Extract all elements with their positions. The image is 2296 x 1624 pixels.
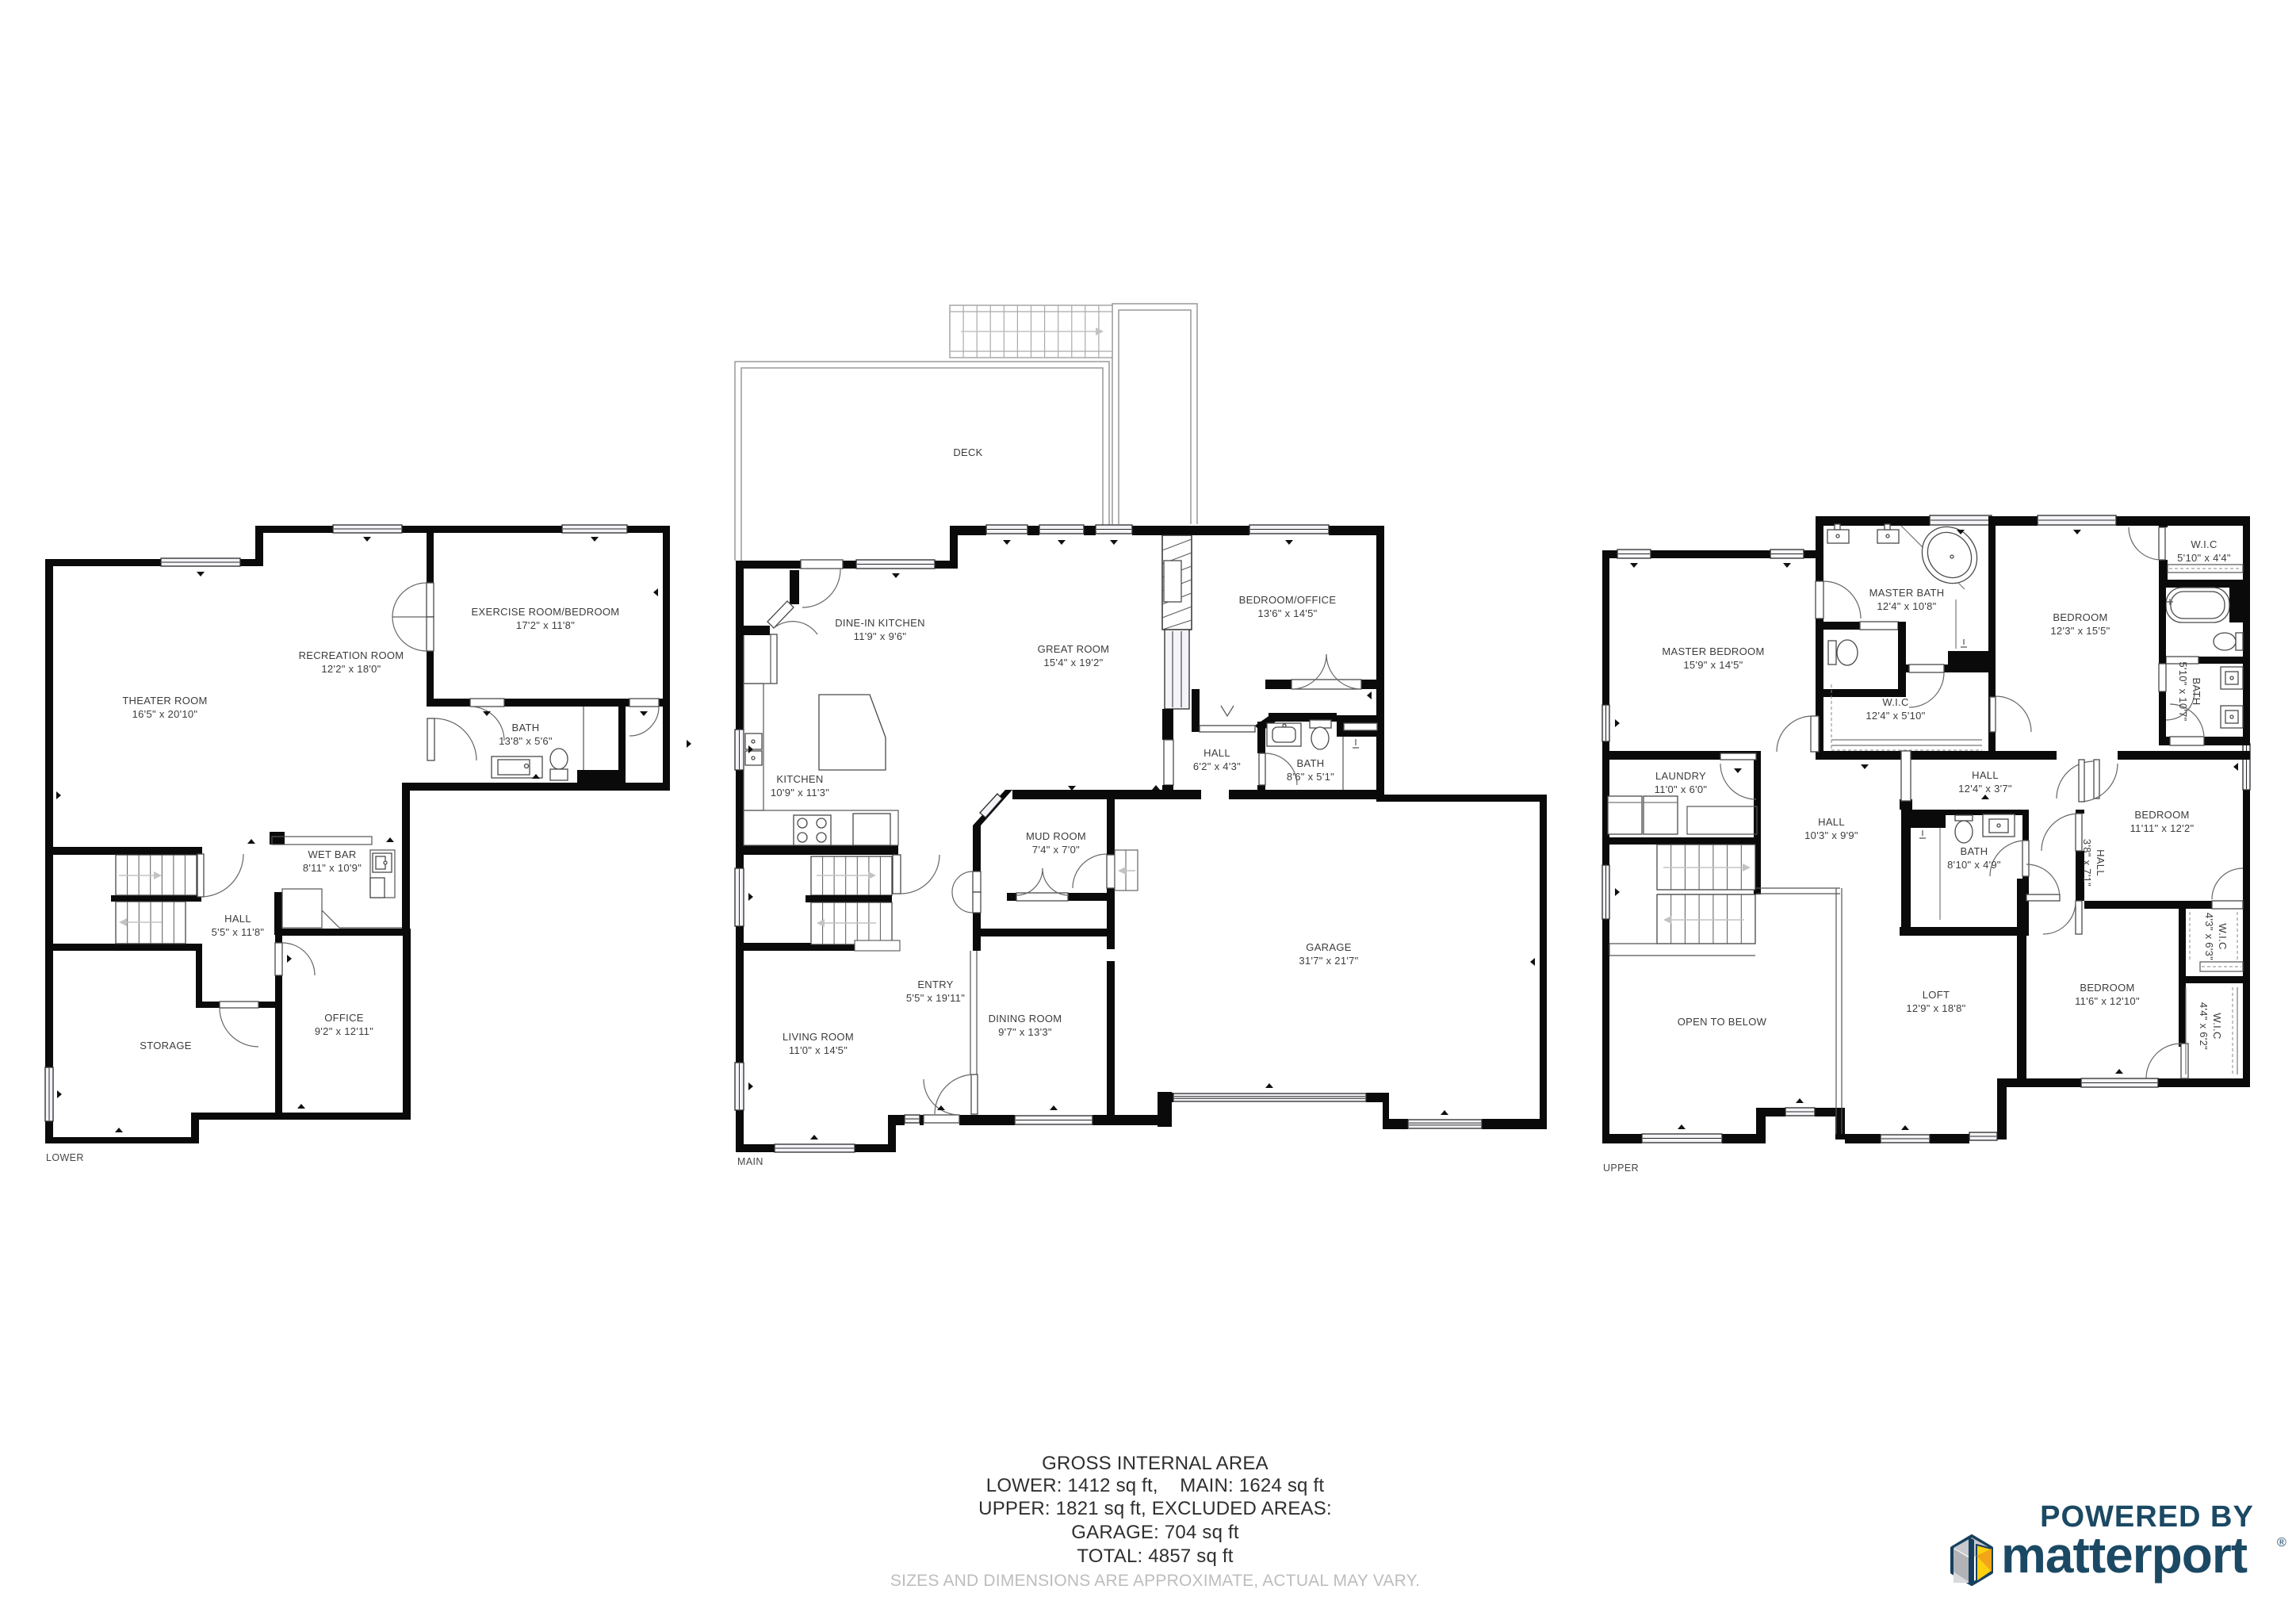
svg-text:3'8" x 7'1": 3'8" x 7'1" bbox=[2081, 839, 2093, 887]
svg-text:31'7" x 21'7": 31'7" x 21'7" bbox=[1299, 955, 1358, 967]
svg-text:BATH: BATH bbox=[1297, 757, 1325, 769]
svg-text:10'3" x 9'9": 10'3" x 9'9" bbox=[1804, 829, 1858, 841]
svg-text:15'9" x 14'5": 15'9" x 14'5" bbox=[1683, 659, 1743, 671]
svg-text:5'10" x 10'7": 5'10" x 10'7" bbox=[2177, 661, 2189, 721]
svg-text:8'10" x 4'9": 8'10" x 4'9" bbox=[1947, 859, 2001, 871]
svg-text:OFFICE: OFFICE bbox=[324, 1012, 363, 1024]
svg-text:HALL: HALL bbox=[224, 913, 251, 925]
svg-text:MAIN: MAIN bbox=[737, 1156, 763, 1167]
svg-text:12'4" x 10'8": 12'4" x 10'8" bbox=[1877, 600, 1936, 612]
svg-text:4'3" x 6'3": 4'3" x 6'3" bbox=[2203, 913, 2215, 960]
svg-text:HALL: HALL bbox=[1203, 747, 1230, 759]
svg-text:BEDROOM: BEDROOM bbox=[2134, 809, 2189, 821]
svg-text:7'4" x 7'0": 7'4" x 7'0" bbox=[1032, 844, 1080, 856]
svg-text:W.I.C: W.I.C bbox=[2211, 1013, 2223, 1039]
svg-text:BATH: BATH bbox=[512, 722, 540, 733]
svg-text:UPPER: UPPER bbox=[1603, 1162, 1639, 1174]
svg-text:STORAGE: STORAGE bbox=[140, 1040, 191, 1051]
svg-text:LOFT: LOFT bbox=[1923, 989, 1950, 1001]
svg-text:HALL: HALL bbox=[2095, 849, 2107, 876]
svg-text:8'11" x 10'9": 8'11" x 10'9" bbox=[303, 862, 362, 874]
svg-text:11'0" x 14'5": 11'0" x 14'5" bbox=[789, 1044, 848, 1056]
svg-text:®: ® bbox=[2277, 1536, 2286, 1549]
svg-text:THEATER ROOM: THEATER ROOM bbox=[122, 695, 207, 707]
svg-text:WET BAR: WET BAR bbox=[308, 848, 356, 860]
svg-text:4'4" x 6'2": 4'4" x 6'2" bbox=[2198, 1002, 2210, 1050]
svg-text:BATH: BATH bbox=[1961, 845, 1988, 857]
svg-text:11'9" x 9'6": 11'9" x 9'6" bbox=[854, 630, 907, 642]
svg-text:EXERCISE ROOM/BEDROOM: EXERCISE ROOM/BEDROOM bbox=[472, 606, 620, 618]
svg-text:W.I.C: W.I.C bbox=[2191, 538, 2217, 550]
svg-text:W.I.C: W.I.C bbox=[2217, 923, 2229, 949]
svg-text:LAUNDRY: LAUNDRY bbox=[1655, 770, 1706, 782]
svg-text:5'10" x 4'4": 5'10" x 4'4" bbox=[2177, 552, 2231, 564]
svg-text:6'2" x 4'3": 6'2" x 4'3" bbox=[1193, 760, 1241, 772]
svg-text:11'11" x 12'2": 11'11" x 12'2" bbox=[2130, 822, 2195, 834]
svg-text:GROSS INTERNAL AREA: GROSS INTERNAL AREA bbox=[1042, 1453, 1269, 1474]
svg-text:MUD ROOM: MUD ROOM bbox=[1026, 830, 1086, 842]
svg-text:5'5" x 11'8": 5'5" x 11'8" bbox=[212, 926, 265, 938]
svg-text:BEDROOM: BEDROOM bbox=[2053, 611, 2107, 623]
svg-text:DINING ROOM: DINING ROOM bbox=[989, 1013, 1062, 1025]
svg-text:9'2" x 12'11": 9'2" x 12'11" bbox=[315, 1025, 373, 1037]
svg-text:HALL: HALL bbox=[1972, 769, 1999, 781]
svg-text:15'4" x 19'2": 15'4" x 19'2" bbox=[1043, 657, 1103, 668]
svg-text:10'9" x 11'3": 10'9" x 11'3" bbox=[771, 787, 829, 799]
svg-text:13'8" x 5'6": 13'8" x 5'6" bbox=[499, 735, 553, 747]
svg-text:12'4" x 5'10": 12'4" x 5'10" bbox=[1865, 710, 1925, 722]
svg-text:12'2" x 18'0": 12'2" x 18'0" bbox=[321, 663, 381, 675]
svg-text:LOWER: 1412 sq ft, MAIN: 16: LOWER: 1412 sq ft, MAIN: 1624 sq ft bbox=[986, 1475, 1325, 1496]
svg-text:12'9" x 18'8": 12'9" x 18'8" bbox=[1906, 1002, 1965, 1014]
svg-text:11'0" x 6'0": 11'0" x 6'0" bbox=[1655, 783, 1708, 795]
svg-text:OPEN TO BELOW: OPEN TO BELOW bbox=[1678, 1016, 1767, 1028]
svg-text:GARAGE: 704 sq ft: GARAGE: 704 sq ft bbox=[1071, 1522, 1239, 1543]
svg-text:BATH: BATH bbox=[2191, 678, 2202, 706]
svg-text:12'4" x 3'7": 12'4" x 3'7" bbox=[1958, 783, 2012, 795]
svg-text:8'6" x 5'1": 8'6" x 5'1" bbox=[1287, 771, 1334, 783]
svg-text:DINE-IN KITCHEN: DINE-IN KITCHEN bbox=[835, 617, 925, 629]
svg-text:RECREATION ROOM: RECREATION ROOM bbox=[299, 649, 404, 661]
svg-text:LIVING ROOM: LIVING ROOM bbox=[783, 1031, 854, 1043]
svg-text:12'3" x 15'5": 12'3" x 15'5" bbox=[2050, 625, 2110, 637]
svg-text:MASTER BEDROOM: MASTER BEDROOM bbox=[1662, 645, 1764, 657]
svg-text:LOWER: LOWER bbox=[46, 1152, 84, 1163]
svg-text:matterport: matterport bbox=[2001, 1526, 2248, 1584]
svg-text:KITCHEN: KITCHEN bbox=[776, 773, 823, 785]
svg-text:ENTRY: ENTRY bbox=[917, 979, 953, 990]
svg-text:TOTAL: 4857 sq ft: TOTAL: 4857 sq ft bbox=[1077, 1545, 1233, 1567]
svg-text:BEDROOM/OFFICE: BEDROOM/OFFICE bbox=[1239, 594, 1337, 606]
svg-text:16'5" x 20'10": 16'5" x 20'10" bbox=[132, 708, 198, 720]
svg-text:13'6" x 14'5": 13'6" x 14'5" bbox=[1257, 607, 1317, 619]
svg-text:11'6" x 12'10": 11'6" x 12'10" bbox=[2075, 995, 2140, 1007]
svg-text:GARAGE: GARAGE bbox=[1306, 941, 1351, 953]
svg-text:W.I.C: W.I.C bbox=[1882, 696, 1908, 708]
svg-text:GREAT ROOM: GREAT ROOM bbox=[1038, 643, 1110, 655]
svg-text:MASTER BATH: MASTER BATH bbox=[1869, 587, 1945, 599]
svg-text:HALL: HALL bbox=[1818, 816, 1845, 828]
svg-text:BEDROOM: BEDROOM bbox=[2080, 982, 2134, 994]
svg-text:9'7" x 13'3": 9'7" x 13'3" bbox=[998, 1026, 1052, 1038]
svg-text:SIZES AND DIMENSIONS ARE APPRO: SIZES AND DIMENSIONS ARE APPROXIMATE, AC… bbox=[890, 1572, 1420, 1590]
svg-text:DECK: DECK bbox=[953, 446, 982, 458]
svg-text:17'2" x 11'8": 17'2" x 11'8" bbox=[516, 619, 575, 631]
svg-text:UPPER: 1821 sq ft, EXCLUDED AR: UPPER: 1821 sq ft, EXCLUDED AREAS: bbox=[978, 1498, 1332, 1519]
svg-text:5'5" x 19'11": 5'5" x 19'11" bbox=[906, 992, 965, 1004]
